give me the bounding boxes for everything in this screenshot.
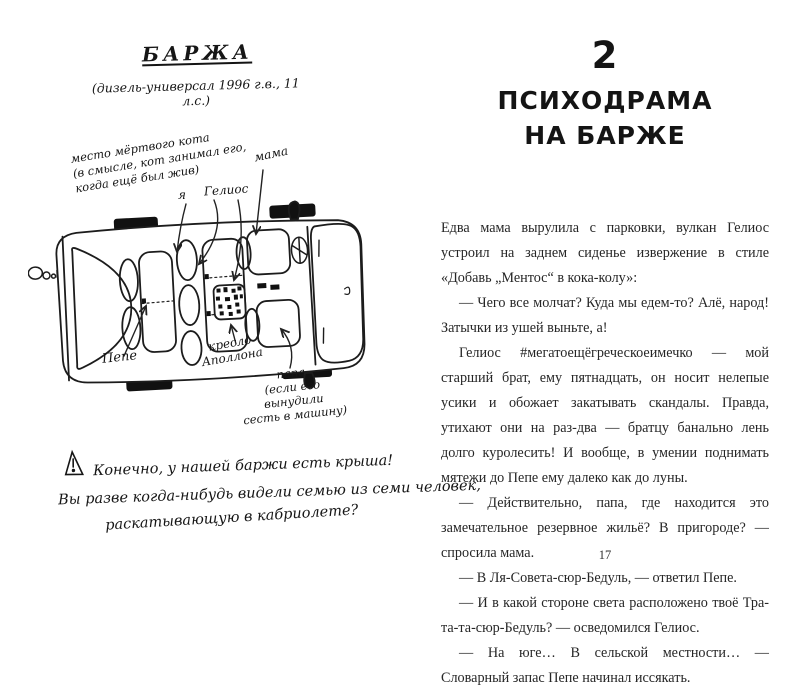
diagram-subtitle: (дизель-универсал 1996 г.в., 11 л.с.) [86,75,307,111]
chapter-number: 2 [441,34,769,77]
body-paragraph: — И в какой стороне света расположено тв… [441,591,769,641]
label-helios: Гелиос [204,181,249,199]
leader-lines [124,170,292,368]
body-paragraph: — Чего все молчат? Куда мы едем-то? Алё,… [441,291,769,341]
body-paragraph: Едва мама вырулила с парковки, вулкан Ге… [441,216,769,291]
footnote-line-1: Конечно, у нашей баржи есть крыша! [93,452,394,480]
checkered-seat-icon [215,286,243,316]
body-text: Едва мама вырулила с парковки, вулкан Ге… [441,216,769,691]
page-number: 17 [441,548,769,563]
exhaust-smoke-icon [28,266,56,280]
label-me: я [178,188,186,203]
label-pepe: Пепе [101,348,137,367]
right-page: 2 ПСИХОДРАМА НА БАРЖЕ Едва мама вырулила… [400,0,800,603]
label-apollo-seat: кресло Аполлона [194,330,268,370]
diagram-title: БАРЖА [142,45,252,67]
label-mama: мама [253,144,290,166]
body-paragraph: — На юге… В сельской местности… — Словар… [441,641,769,691]
label-papa: папа (если его вынудили сесть в машину) [235,360,350,427]
chapter-title-line-2: НА БАРЖЕ [441,121,769,150]
body-paragraph: Гелиос #мегатоещёгреческоеимечко — мой с… [441,341,769,491]
steering-wheel-icon [291,237,308,264]
chapter-title-line-1: ПСИХОДРАМА [441,86,769,115]
left-page: БАРЖА (дизель-универсал 1996 г.в., 11 л.… [0,0,400,603]
warning-icon [62,449,84,479]
body-paragraph: — В Ля-Совета-сюр-Бедуль, — ответил Пепе… [441,566,769,591]
